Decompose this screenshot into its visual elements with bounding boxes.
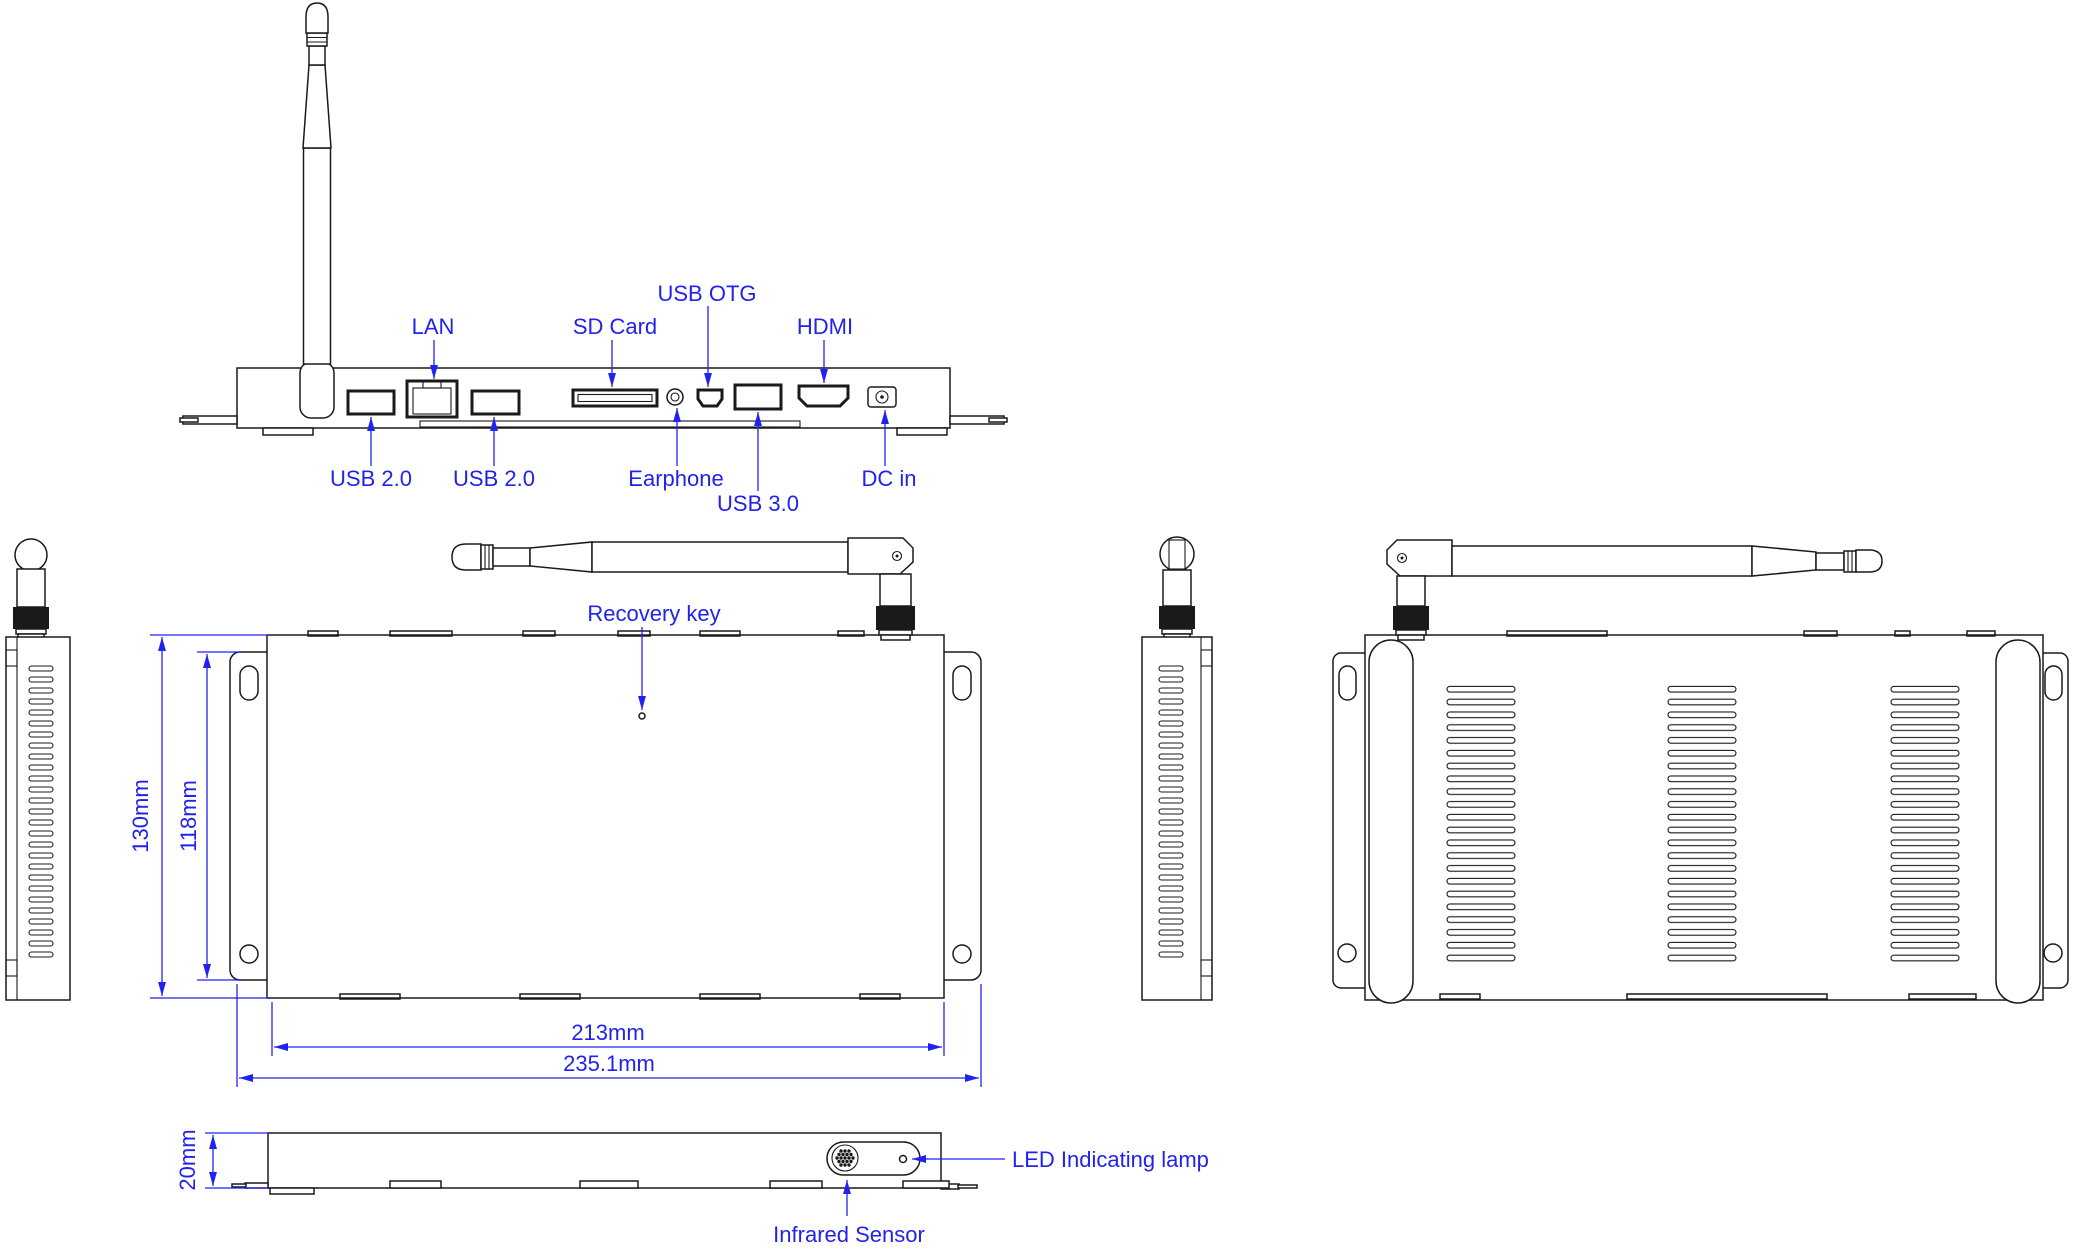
front-left-flange [245,1183,268,1188]
top-view: Recovery key [230,538,981,999]
technical-drawing-page: LAN SD Card USB OTG HDMI USB 2.0 USB 2.0… [0,0,2075,1250]
front-left-flange-tab [232,1184,246,1187]
label-usb-otg: USB OTG [657,281,756,306]
dim-20mm: 20mm [175,1129,200,1190]
front-right-flange-tab [958,1185,977,1188]
antenna-icon [13,539,49,639]
rear-right-foot [897,428,947,435]
rear-left-foot [263,428,313,435]
dim-213mm: 213mm [571,1020,644,1045]
label-usb2-right: USB 2.0 [453,466,535,491]
antenna-icon [1159,537,1195,639]
vent-slots [1158,663,1184,960]
rear-left-flange-tab [180,418,198,422]
front-view: LED Indicating lamp Infrared Sensor [232,1133,1209,1247]
label-recovery-key: Recovery key [587,601,720,626]
dim-130mm: 130mm [128,779,153,852]
label-led: LED Indicating lamp [1012,1147,1209,1172]
antenna-icon [1387,540,1882,640]
device-drawing: LAN SD Card USB OTG HDMI USB 2.0 USB 2.0… [0,0,2075,1250]
label-lan: LAN [412,314,455,339]
left-rail [1369,640,1413,1003]
hdmi-port-icon [799,386,848,406]
usb-otg-port-icon [698,390,722,406]
label-dc-in: DC in [861,466,916,491]
label-infrared: Infrared Sensor [773,1222,925,1247]
vent-slots [1446,683,1516,965]
dim-118mm: 118mm [176,780,201,852]
lan-port-icon [407,381,457,417]
label-usb3: USB 3.0 [717,491,799,516]
right-side-view [1142,537,1212,1000]
right-rail [1996,640,2040,1003]
dim-235mm: 235.1mm [563,1051,655,1076]
vent-slots [1667,683,1737,965]
usb-2-port-icon [472,391,519,414]
label-sd-card: SD Card [573,314,657,339]
usb-3-port-icon [735,385,781,409]
label-usb2-left: USB 2.0 [330,466,412,491]
antenna-icon [300,3,334,418]
bottom-view [1333,540,2068,1003]
vent-slots [28,663,54,960]
left-side-view [6,539,70,1000]
usb-2-port-icon [348,391,394,414]
top-body-outline [267,635,944,998]
rear-right-flange-tab [989,418,1007,422]
label-earphone: Earphone [628,466,723,491]
label-hdmi: HDMI [797,314,853,339]
rear-panel-view: LAN SD Card USB OTG HDMI USB 2.0 USB 2.0… [180,3,1007,516]
vent-slots [1890,683,1960,965]
sd-card-slot-icon [573,390,657,406]
